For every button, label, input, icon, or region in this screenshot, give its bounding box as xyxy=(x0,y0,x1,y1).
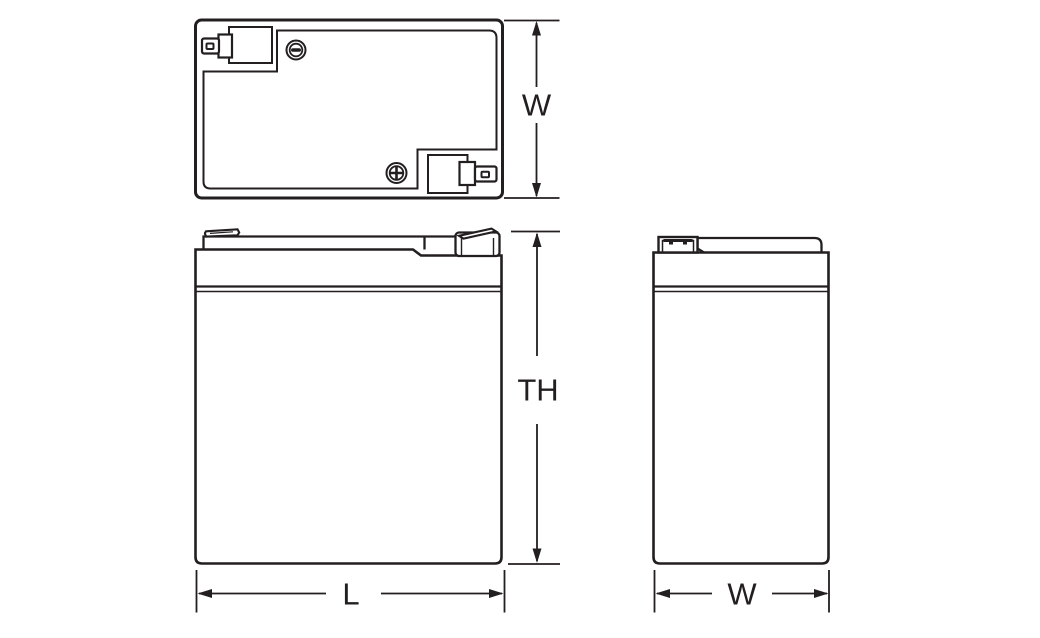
dimension-width-side: W xyxy=(655,570,830,613)
minus-icon xyxy=(287,41,306,60)
dimension-width-top: W xyxy=(504,21,560,199)
arrowhead-down xyxy=(532,183,541,198)
side-view xyxy=(654,237,829,564)
length-label: L xyxy=(342,577,359,612)
arrowhead-down xyxy=(533,549,542,564)
negative-spade-base xyxy=(219,35,233,58)
top-view-outer-case xyxy=(196,20,503,198)
side-case-outline xyxy=(654,253,829,564)
arrowhead-left xyxy=(198,589,213,598)
dimension-total-height: TH xyxy=(508,232,560,565)
front-view xyxy=(196,229,502,564)
positive-spade-base xyxy=(460,162,476,185)
arrowhead-left xyxy=(656,589,671,598)
front-case-outline xyxy=(196,250,502,564)
arrowhead-up xyxy=(533,233,542,248)
battery-dimension-diagram: W TH L xyxy=(0,0,1040,638)
top-view xyxy=(196,20,503,198)
width-top-label: W xyxy=(522,88,552,123)
positive-spade-hole xyxy=(482,172,490,178)
side-spade-tab-notch xyxy=(683,242,687,245)
negative-spade-hole xyxy=(207,44,214,50)
dimension-length: L xyxy=(197,570,505,613)
diagram-canvas: W TH L xyxy=(0,0,1040,638)
arrowhead-right xyxy=(489,589,504,598)
side-spade-tab-notch xyxy=(669,242,673,245)
width-side-label: W xyxy=(727,577,757,612)
arrowhead-right xyxy=(814,589,829,598)
front-lid-top xyxy=(204,237,456,250)
plus-icon xyxy=(387,163,407,183)
side-lid-top xyxy=(698,238,822,253)
total-height-label: TH xyxy=(517,373,558,408)
arrowhead-up xyxy=(532,21,541,36)
